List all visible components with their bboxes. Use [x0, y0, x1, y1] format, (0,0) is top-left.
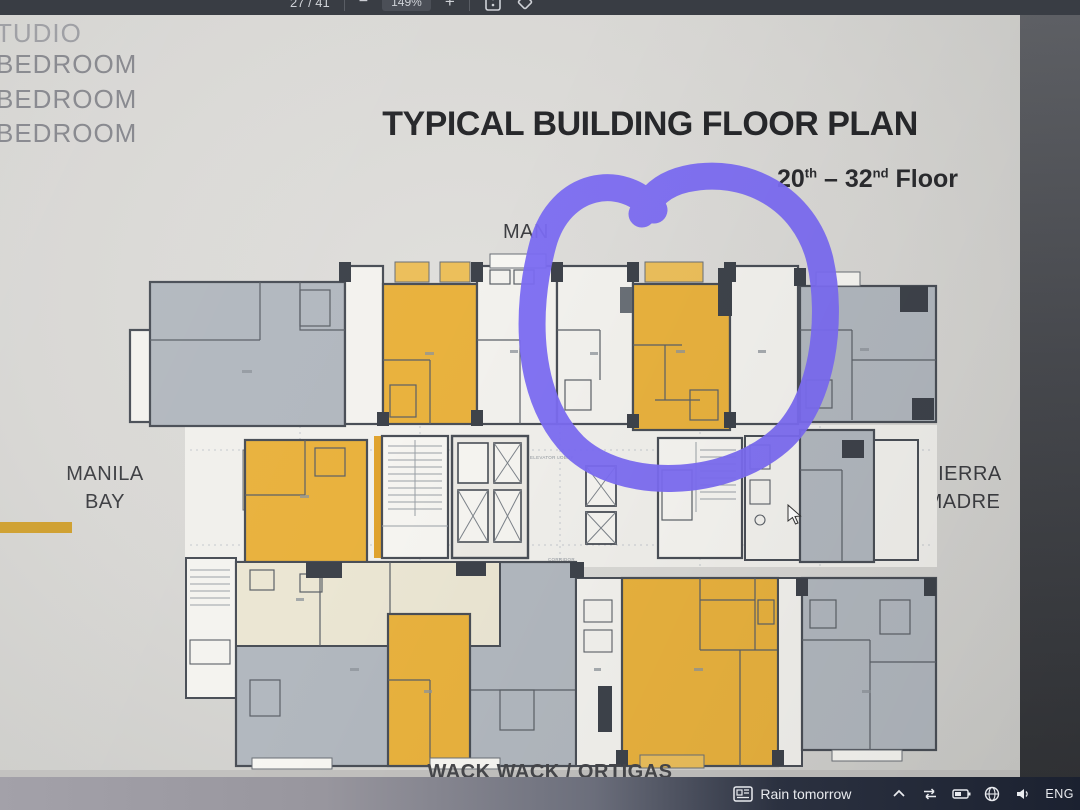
zoom-in-button[interactable]: + — [445, 0, 455, 12]
slide-title: TYPICAL BUILDING FLOOR PLAN — [340, 105, 960, 144]
news-weather-icon — [733, 785, 751, 803]
toolbar-divider — [469, 0, 470, 11]
fit-page-icon[interactable] — [484, 0, 502, 11]
rotate-icon[interactable] — [516, 0, 534, 11]
language-indicator[interactable]: ENG — [1045, 787, 1074, 801]
legend-item-bedroom-3: BEDROOM — [0, 118, 137, 149]
zoom-level-field[interactable]: 149% — [382, 0, 431, 11]
zoom-out-button[interactable]: − — [359, 0, 368, 11]
chevron-up-icon[interactable] — [890, 785, 908, 803]
legend-item-studio-cutoff: TUDIO — [0, 18, 82, 49]
gold-accent-bar — [0, 522, 72, 533]
toolbar-divider — [344, 0, 345, 11]
network-globe-icon[interactable] — [983, 785, 1001, 803]
sync-arrows-icon[interactable] — [921, 785, 939, 803]
speaker-icon[interactable] — [1014, 785, 1032, 803]
page-indicator: 27 / 41 — [290, 0, 330, 10]
floor-plan: ELEVATOR LOBBY CORRIDOR — [120, 160, 950, 778]
legend-item-bedroom-2: BEDROOM — [0, 84, 137, 115]
weather-text: Rain tomorrow — [760, 786, 851, 802]
battery-icon[interactable] — [952, 785, 970, 803]
windows-taskbar: Rain tomorrow ENG — [0, 777, 1080, 810]
screen: 27 / 41 − 149% + TUDIO BEDROOM BEDROOM B… — [0, 0, 1080, 810]
viewer-background — [1020, 15, 1080, 778]
legend-item-bedroom-1: BEDROOM — [0, 49, 137, 80]
pdf-viewer-toolbar: 27 / 41 − 149% + — [0, 0, 1080, 15]
weather-widget[interactable]: Rain tomorrow — [733, 785, 851, 803]
